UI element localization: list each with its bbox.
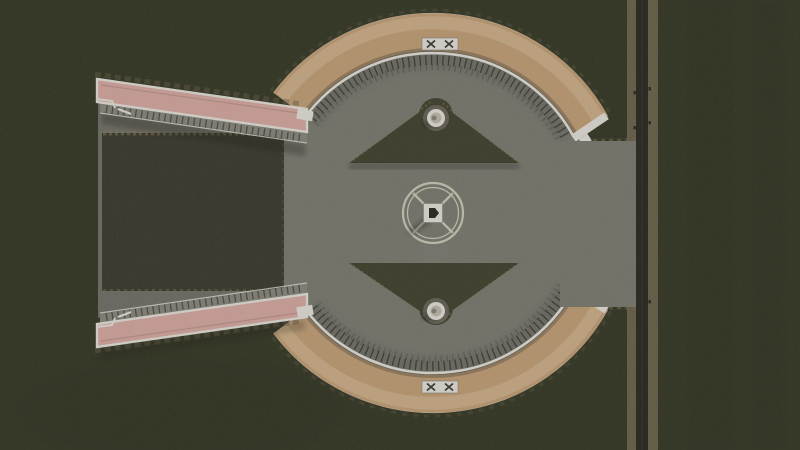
- aerial-scene: [0, 0, 800, 450]
- grain-light-overlay: [0, 0, 800, 450]
- game-viewport[interactable]: [0, 0, 800, 450]
